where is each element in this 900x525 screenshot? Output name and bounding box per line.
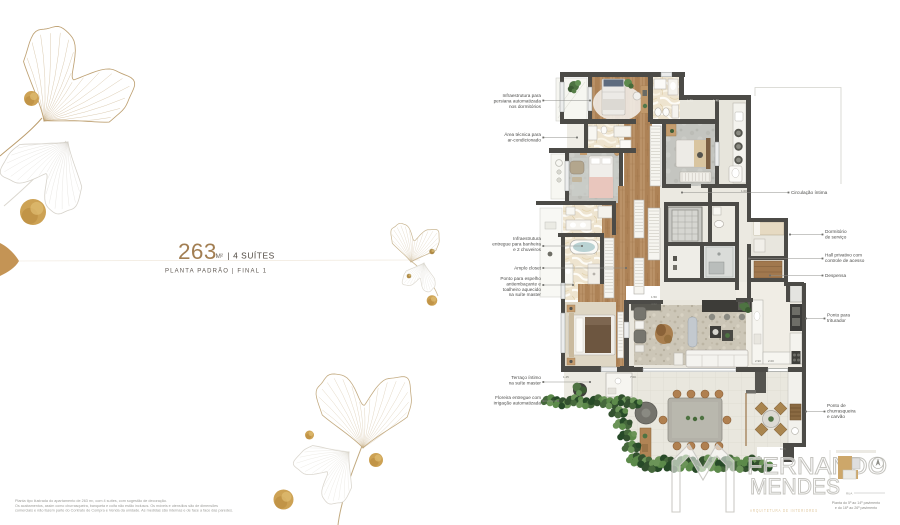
svg-text:Amplo closet: Amplo closet xyxy=(514,266,542,271)
svg-text:e carvão: e carvão xyxy=(827,414,845,419)
svg-text:Área técnica para: Área técnica para xyxy=(504,131,541,137)
svg-text:7.00: 7.00 xyxy=(630,375,636,379)
svg-text:| 4 SUÍTES: | 4 SUÍTES xyxy=(228,251,275,261)
svg-text:entregue para banheira: entregue para banheira xyxy=(492,241,541,246)
svg-text:Hall privativo com: Hall privativo com xyxy=(825,253,862,258)
svg-text:Despensa: Despensa xyxy=(825,273,847,278)
svg-text:triturador: triturador xyxy=(827,318,846,323)
svg-text:na suíte master: na suíte master xyxy=(509,292,542,297)
svg-text:persiana automatizada: persiana automatizada xyxy=(494,98,542,103)
svg-text:Terraço íntimo: Terraço íntimo xyxy=(511,375,541,380)
svg-text:2.00: 2.00 xyxy=(768,359,774,363)
svg-text:Ponto para: Ponto para xyxy=(827,313,850,318)
svg-text:2.90: 2.90 xyxy=(755,359,761,363)
svg-text:churrasqueira: churrasqueira xyxy=(827,408,856,413)
svg-text:ar-condicionado: ar-condicionado xyxy=(508,137,542,142)
svg-text:toalheiro aquecido: toalheiro aquecido xyxy=(503,287,542,292)
svg-text:Floreira entregue com: Floreira entregue com xyxy=(495,395,541,400)
svg-text:Planta tipo ilustrada do apart: Planta tipo ilustrada do apartamento de … xyxy=(15,499,167,503)
svg-text:4.02: 4.02 xyxy=(651,302,657,306)
svg-text:Infraestrutura: Infraestrutura xyxy=(513,236,541,241)
svg-text:Planta do 5º ao 14º pavimento: Planta do 5º ao 14º pavimento xyxy=(832,501,880,505)
svg-text:Dormitório: Dormitório xyxy=(825,229,847,234)
svg-text:Infraestrutura para: Infraestrutura para xyxy=(502,93,541,98)
svg-text:M²: M² xyxy=(216,253,224,260)
svg-text:9.05: 9.05 xyxy=(780,447,786,451)
svg-text:e 2 chuveiros: e 2 chuveiros xyxy=(513,247,542,252)
svg-text:na suíte master: na suíte master xyxy=(509,380,542,385)
svg-text:irrigação automatizada: irrigação automatizada xyxy=(494,400,542,405)
svg-text:ARQUITETURA DE INTERIORES: ARQUITETURA DE INTERIORES xyxy=(750,508,818,513)
svg-text:Os acabamentos, assim como chu: Os acabamentos, assim como churrasqueira… xyxy=(15,504,218,508)
svg-text:1.46: 1.46 xyxy=(713,99,719,103)
svg-text:1.20: 1.20 xyxy=(666,112,672,116)
svg-text:de serviço: de serviço xyxy=(825,234,847,239)
svg-text:controle de acesso: controle de acesso xyxy=(825,258,865,263)
svg-text:Ponto para espelho: Ponto para espelho xyxy=(500,276,541,281)
svg-text:263: 263 xyxy=(178,239,217,264)
svg-text:1.73: 1.73 xyxy=(687,99,693,103)
svg-text:1.50: 1.50 xyxy=(651,295,657,299)
svg-text:e do 16º ao 26º pavimento: e do 16º ao 26º pavimento xyxy=(835,506,877,510)
svg-text:MENDES: MENDES xyxy=(750,474,840,499)
svg-text:1.45: 1.45 xyxy=(563,375,569,379)
svg-text:nos dormitórios: nos dormitórios xyxy=(509,104,542,109)
svg-text:RUA: RUA xyxy=(846,492,852,496)
svg-text:Ponto de: Ponto de xyxy=(827,403,846,408)
svg-text:Circulação íntima: Circulação íntima xyxy=(791,190,828,195)
svg-text:PLANTA PADRÃO | FINAL 1: PLANTA PADRÃO | FINAL 1 xyxy=(165,268,267,275)
svg-text:antiembaçante e: antiembaçante e xyxy=(506,281,541,286)
svg-text:comerciais e não fazem parte d: comerciais e não fazem parte do Contrato… xyxy=(15,509,233,513)
